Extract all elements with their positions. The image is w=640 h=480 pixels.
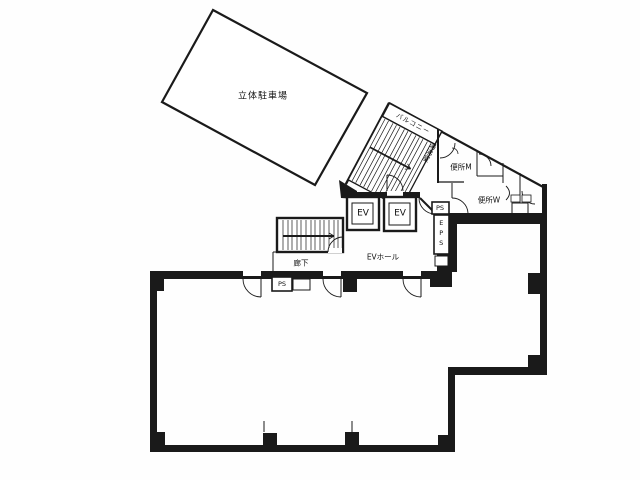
door-arc (479, 154, 491, 166)
elevator-1-label: EV (357, 210, 369, 219)
columns (150, 271, 547, 449)
column (343, 279, 357, 292)
stairs-lower (277, 218, 343, 253)
column (528, 355, 547, 369)
eps-label: EPS (438, 219, 445, 249)
door-arc (506, 186, 510, 200)
column (430, 271, 452, 287)
column (150, 279, 164, 291)
floor-plan-drawing (0, 0, 640, 480)
shaft-small-box (435, 256, 448, 266)
door-arc (452, 198, 468, 213)
ps-upper-label: PS (436, 205, 444, 212)
column (345, 432, 359, 446)
floor-plan: 立体駐車場 バルコニー 湯沸室 便所M 便所W EV EV EVホール 廊下 P… (0, 0, 640, 480)
corridor-label: 廊下 (294, 259, 309, 267)
ps-lower-label: PS (278, 281, 286, 288)
column (150, 432, 165, 445)
column (438, 435, 453, 449)
fixture-box (511, 195, 520, 202)
elevator-hall-label: EVホール (367, 253, 399, 261)
elevator-2-label: EV (394, 210, 406, 219)
toilet-w-label: 便所W (478, 196, 500, 204)
column (263, 433, 277, 447)
ps-lower-neighbor-box (293, 279, 310, 290)
column (528, 273, 547, 294)
door-arc (440, 143, 455, 158)
parking-label: 立体駐車場 (238, 93, 288, 102)
diagonal-wall-connector (542, 184, 547, 215)
main-walls (150, 213, 547, 452)
toilet-m-label: 便所M (450, 163, 471, 171)
fixture-box (522, 195, 531, 202)
